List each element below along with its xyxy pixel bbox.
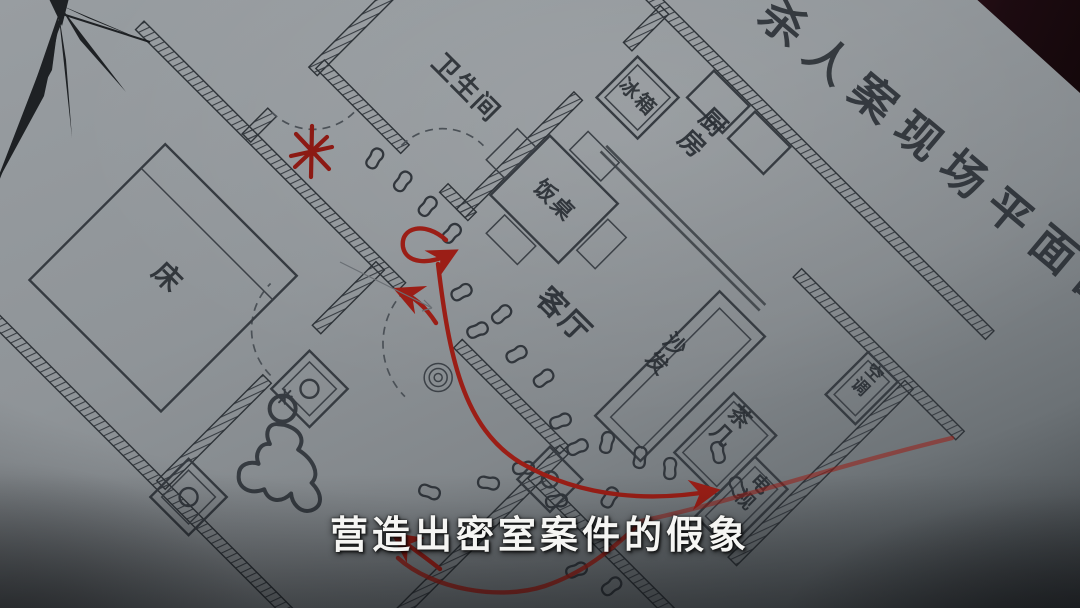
footprint xyxy=(392,169,414,193)
video-subtitle: 营造出密室案件的假象 xyxy=(330,504,750,559)
footprint xyxy=(599,431,616,454)
compass-star xyxy=(0,0,152,188)
footprint xyxy=(416,195,439,219)
room-label-bed: 床 xyxy=(146,255,190,299)
room-label-kitchen: 厨房 xyxy=(672,102,734,164)
kitchen-counter-lines xyxy=(600,145,767,312)
room-label-bathroom: 卫生间 xyxy=(426,47,507,128)
footprint xyxy=(664,458,677,479)
footprint xyxy=(600,575,624,597)
footprint xyxy=(532,367,556,389)
room-label-sofa: 沙发 xyxy=(639,327,692,380)
footprint xyxy=(440,222,463,245)
room-label-living-room: 客厅 xyxy=(529,281,598,350)
footprint xyxy=(566,437,590,456)
spiral-mark xyxy=(418,358,458,398)
footprint xyxy=(418,483,442,501)
footprint xyxy=(490,303,514,326)
footprint xyxy=(449,282,473,302)
evidence-asterisk xyxy=(276,387,294,405)
room-label-dining-table: 饭桌 xyxy=(529,175,581,227)
footprint xyxy=(466,321,490,340)
video-frame: 卫生间 冰箱 厨房 饭桌 客厅 床 沙发 茶几 电视 空调 xyxy=(0,0,1080,608)
footprint xyxy=(364,146,385,170)
footprint xyxy=(549,412,573,430)
footprint xyxy=(633,446,648,468)
footprint xyxy=(477,476,499,491)
footprint xyxy=(504,344,528,364)
door-lock-mark xyxy=(291,126,332,177)
